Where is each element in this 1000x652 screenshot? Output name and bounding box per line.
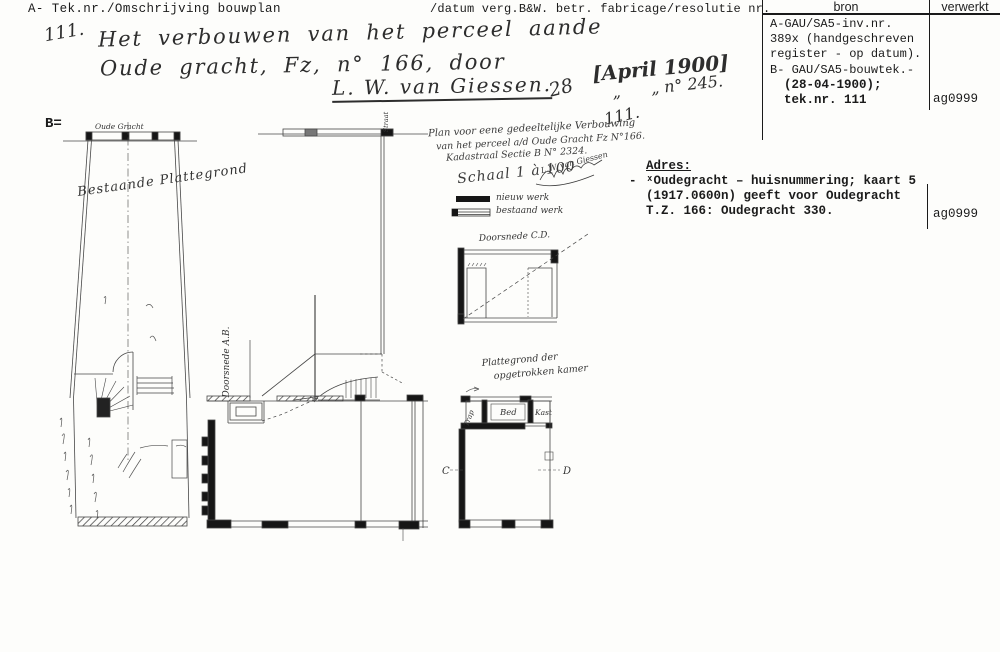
drawing-labels: Oude Gracht Bestaande Plattegrond Doorsn… (75, 111, 589, 477)
margin-annotations (60, 418, 72, 514)
label-doorsnede-ab: Doorsnede A.B. (222, 326, 232, 398)
label-doorsnede-cd: Doorsnede C.D. (478, 230, 551, 244)
architectural-drawing-canvas: Oude Gracht Bestaande Plattegrond Doorsn… (0, 0, 1000, 652)
label-marker-d: D (562, 466, 571, 477)
legend-symbols (452, 160, 602, 216)
titleblock-signature-flourish (536, 160, 602, 186)
label-straat: Straat (382, 111, 390, 132)
label-marker-c: C (442, 466, 450, 477)
label-room-kast: Kast (534, 408, 553, 417)
label-street-oudegracht: Oude Gracht (95, 122, 145, 131)
section-ab-drawing (202, 129, 428, 541)
label-bestaande-plattegrond: Bestaande Plattegrond (75, 161, 248, 200)
section-cd-drawing (458, 234, 588, 324)
scanned-document-page: A- Tek.nr./Omschrijving bouwplan /datum … (0, 0, 1000, 652)
label-room-bed: Bed (499, 408, 517, 418)
